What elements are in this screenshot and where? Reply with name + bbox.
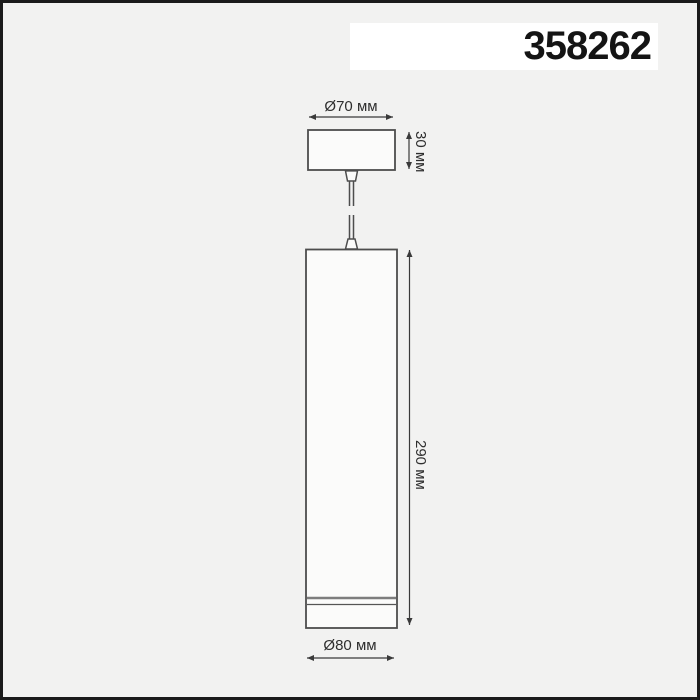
body-diameter-label: Ø80 мм	[288, 637, 412, 654]
body-height-label: 290 мм	[412, 440, 429, 490]
suspension-cable	[346, 171, 358, 249]
lamp-body	[306, 250, 397, 629]
canopy-diameter-label: Ø70 мм	[289, 98, 413, 115]
ceiling-canopy	[308, 130, 395, 170]
technical-drawing-page: 358262	[0, 0, 700, 700]
canopy-height-label: 30 мм	[412, 131, 429, 172]
